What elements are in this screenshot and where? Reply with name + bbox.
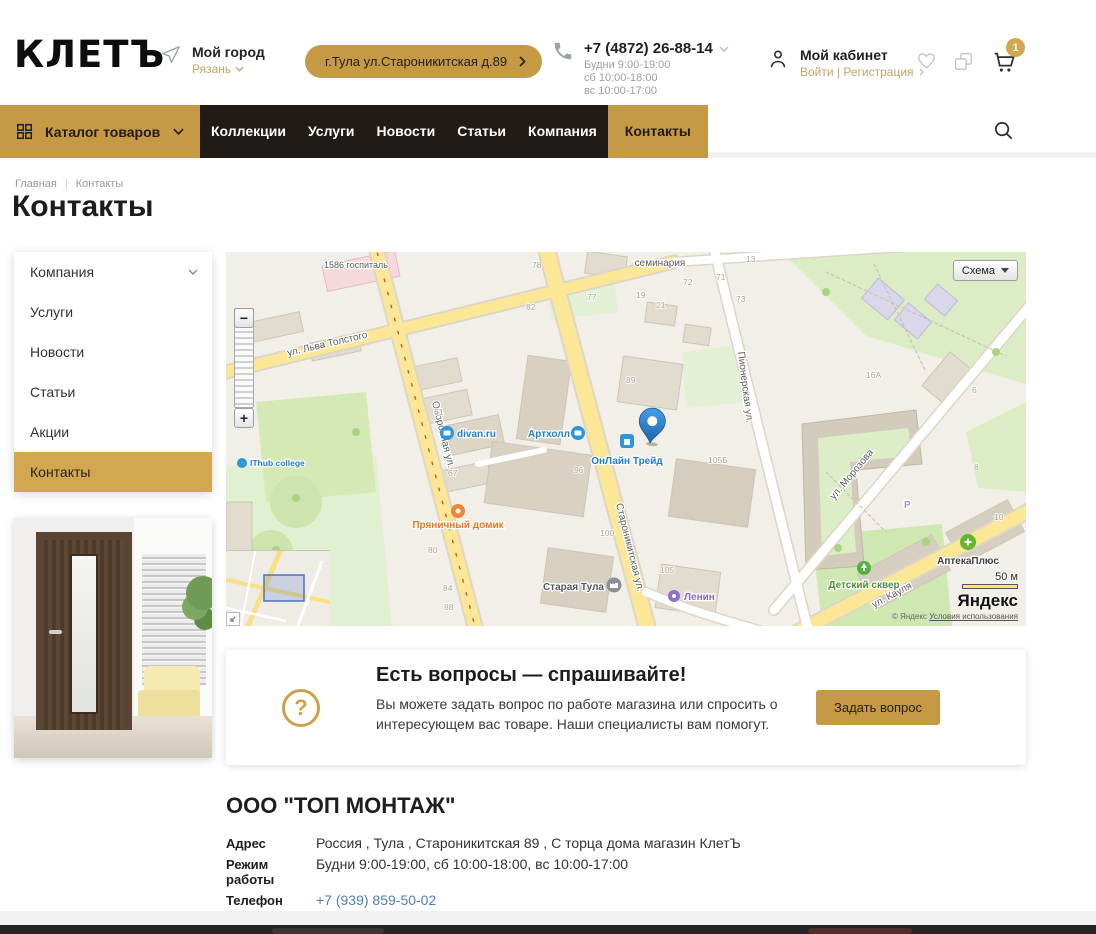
- nav-item-contacts[interactable]: Контакты: [608, 105, 708, 158]
- house-number: 82: [526, 302, 536, 312]
- house-number: 8: [974, 462, 979, 472]
- house-number: 88: [444, 602, 454, 612]
- sidebar-item-articles[interactable]: Статьи: [14, 372, 212, 412]
- poi-label: Ленин: [684, 592, 715, 603]
- map-layer-button[interactable]: Схема: [953, 260, 1018, 281]
- phone-block: +7 (4872) 26-88-14 Будни 9:00-19:00 сб 1…: [552, 40, 729, 98]
- map-canvas: ул. Льва Толстого Оборонная ул. Староник…: [226, 252, 1026, 626]
- page-title: Контакты: [12, 190, 153, 224]
- chevron-down-icon: [173, 128, 184, 135]
- pre-footer-strip: [0, 911, 1096, 925]
- poi-label: Старая Тула: [543, 582, 604, 593]
- user-icon: [766, 47, 790, 79]
- zoom-in-button[interactable]: +: [234, 408, 254, 428]
- breadcrumb-separator: |: [65, 178, 68, 190]
- house-number: 6: [972, 385, 977, 395]
- house-number: 72: [683, 277, 693, 287]
- search-icon: [992, 119, 1015, 142]
- nav-item-services[interactable]: Услуги: [297, 105, 366, 158]
- yandex-map[interactable]: ул. Льва Толстого Оборонная ул. Староник…: [226, 252, 1026, 626]
- poi-label: Артхолл: [528, 429, 570, 440]
- city-label: Мой город: [192, 44, 265, 60]
- map-copyright: © Яндекс: [892, 612, 927, 621]
- row-value: Будни 9:00-19:00, сб 10:00-18:00, вс 10:…: [316, 856, 628, 887]
- logo[interactable]: КЛЕТЪ: [14, 33, 165, 76]
- row-value: Россия , Тула , Староникитская 89 , С то…: [316, 835, 741, 851]
- house-number: 13: [746, 254, 756, 264]
- house-number: 105: [660, 565, 674, 575]
- house-number: 73: [736, 294, 746, 304]
- footer-element: [272, 928, 384, 934]
- house-number: 16А: [866, 370, 881, 380]
- map-scale-bar: [962, 584, 1018, 589]
- sidebar-item-promos[interactable]: Акции: [14, 412, 212, 452]
- map-layer-label: Схема: [962, 265, 995, 277]
- question-card-title: Есть вопросы — спрашивайте!: [376, 664, 816, 687]
- compare-button[interactable]: [953, 51, 974, 77]
- work-hours: Будни 9:00-19:00 сб 10:00-18:00 вс 10:00…: [584, 59, 729, 98]
- house-number: 21: [656, 300, 666, 310]
- house-number: 100: [600, 528, 614, 538]
- collapse-arrow-icon: [229, 615, 237, 623]
- company-row-phone: Телефон +7 (939) 859-50-02: [226, 892, 1026, 908]
- house-number: 67: [448, 468, 458, 478]
- house-number: 96: [574, 465, 584, 475]
- city-value: Рязань: [192, 62, 231, 76]
- breadcrumb-home[interactable]: Главная: [15, 178, 57, 190]
- catalog-button[interactable]: Каталог товаров: [0, 105, 200, 158]
- poi-label: Детский сквер: [828, 580, 899, 591]
- banner-plant: [186, 576, 212, 610]
- question-card: ? Есть вопросы — спрашивайте! Вы можете …: [226, 650, 1026, 765]
- house-number: 80: [428, 545, 438, 555]
- city-selector[interactable]: Мой город Рязань: [160, 44, 265, 76]
- nav-item-company[interactable]: Компания: [517, 105, 608, 158]
- poi-label: divan.ru: [457, 429, 496, 440]
- row-label: Адрес: [226, 835, 316, 851]
- poi-label: АптекаПлюс: [937, 556, 999, 567]
- chevron-down-icon: [188, 269, 198, 275]
- company-row-hours: Режим работы Будни 9:00-19:00, сб 10:00-…: [226, 856, 1026, 887]
- heart-icon: [916, 51, 937, 70]
- company-name: ООО "ТОП МОНТАЖ": [226, 793, 1026, 819]
- phone-icon: [552, 40, 574, 98]
- company-phone-link[interactable]: +7 (939) 859-50-02: [316, 892, 436, 908]
- favorites-button[interactable]: [916, 51, 937, 75]
- chevron-down-icon: [235, 66, 244, 72]
- row-label: Телефон: [226, 892, 316, 908]
- banner-door-handle: [49, 630, 62, 634]
- nav-menu: Каталог товаров Коллекции Услуги Новости…: [0, 105, 708, 158]
- map-attribution: 50 м Яндекс © Яндекс Условия использован…: [892, 571, 1018, 621]
- minimap-canvas: [226, 551, 330, 626]
- company-row-address: Адрес Россия , Тула , Староникитская 89 …: [226, 835, 1026, 851]
- login-register-link: Войти | Регистрация: [800, 65, 914, 79]
- cart-count-badge: 1: [1006, 38, 1025, 57]
- sidebar-item-news[interactable]: Новости: [14, 332, 212, 372]
- parking-label: P: [904, 500, 911, 511]
- phone-number-text: +7 (4872) 26-88-14: [584, 40, 713, 57]
- page: КЛЕТЪ Мой город Рязань г.Тула ул.Старони…: [0, 0, 1096, 934]
- zoom-out-button[interactable]: −: [234, 308, 254, 328]
- poi-label: IThub college: [250, 458, 305, 468]
- map-scale-label: 50 м: [892, 571, 1018, 583]
- footer-element: [808, 928, 912, 934]
- caret-down-icon: [1001, 268, 1009, 273]
- chevron-right-icon: [519, 56, 526, 67]
- banner-door-glass: [70, 554, 98, 714]
- poi-label: Пряничный домик: [412, 520, 504, 531]
- sidebar-item-services[interactable]: Услуги: [14, 292, 212, 332]
- house-number: 77: [587, 292, 597, 302]
- header: КЛЕТЪ Мой город Рязань г.Тула ул.Старони…: [0, 0, 1096, 105]
- footer: [0, 925, 1096, 934]
- map-terms-link[interactable]: Условия использования: [929, 612, 1018, 621]
- sidebar-item-contacts[interactable]: Контакты: [14, 452, 212, 492]
- sidebar-item-company[interactable]: Компания: [14, 252, 212, 292]
- yandex-logo[interactable]: Яндекс: [892, 591, 1018, 611]
- phone-number[interactable]: +7 (4872) 26-88-14: [584, 40, 729, 57]
- minimap[interactable]: [226, 550, 330, 626]
- location-icon: [160, 44, 182, 76]
- house-number: 71: [716, 272, 726, 282]
- poi-label: 1586 госпиталь: [324, 260, 388, 270]
- catalog-label: Каталог товаров: [45, 124, 160, 140]
- store-address-label: г.Тула ул.Староникитская д.89: [325, 54, 507, 69]
- breadcrumb: Главная | Контакты: [15, 178, 123, 190]
- ask-question-button[interactable]: Задать вопрос: [816, 690, 940, 725]
- poi-label: ОнЛайн Трейд: [591, 456, 663, 467]
- banner-chair-seat: [138, 690, 200, 718]
- question-card-text: Вы можете задать вопрос по работе магази…: [376, 694, 796, 735]
- account[interactable]: Мой кабинет Войти | Регистрация: [766, 47, 924, 79]
- house-number: 61: [434, 407, 444, 417]
- house-number: 89: [626, 375, 636, 385]
- main-nav: Каталог товаров Коллекции Услуги Новости…: [0, 105, 1096, 158]
- map-zoom-control: − +: [234, 308, 254, 408]
- door-banner[interactable]: [14, 518, 212, 758]
- house-number: 105Б: [708, 455, 728, 465]
- nav-item-news[interactable]: Новости: [366, 105, 447, 158]
- account-label: Мой кабинет: [800, 47, 924, 63]
- search-button[interactable]: [992, 119, 1015, 147]
- row-label: Режим работы: [226, 856, 316, 887]
- poi-label: семинария: [635, 258, 686, 269]
- nav-item-collections[interactable]: Коллекции: [200, 105, 297, 158]
- house-number: 84: [443, 583, 453, 593]
- compare-icon: [953, 51, 974, 72]
- grid-icon: [16, 123, 33, 140]
- house-number: 10: [994, 512, 1004, 522]
- store-address-button[interactable]: г.Тула ул.Староникитская д.89: [305, 45, 542, 78]
- question-mark-icon: ?: [282, 689, 320, 727]
- breadcrumb-current: Контакты: [76, 178, 124, 190]
- sidebar-menu: Компания Услуги Новости Статьи Акции Кон…: [14, 252, 212, 492]
- sidebar-item-label: Компания: [30, 264, 94, 280]
- house-number: 19: [636, 290, 646, 300]
- nav-item-articles[interactable]: Статьи: [446, 105, 517, 158]
- minimap-collapse-button[interactable]: [226, 612, 240, 626]
- chevron-down-icon: [719, 46, 729, 52]
- house-number: 78: [532, 260, 542, 270]
